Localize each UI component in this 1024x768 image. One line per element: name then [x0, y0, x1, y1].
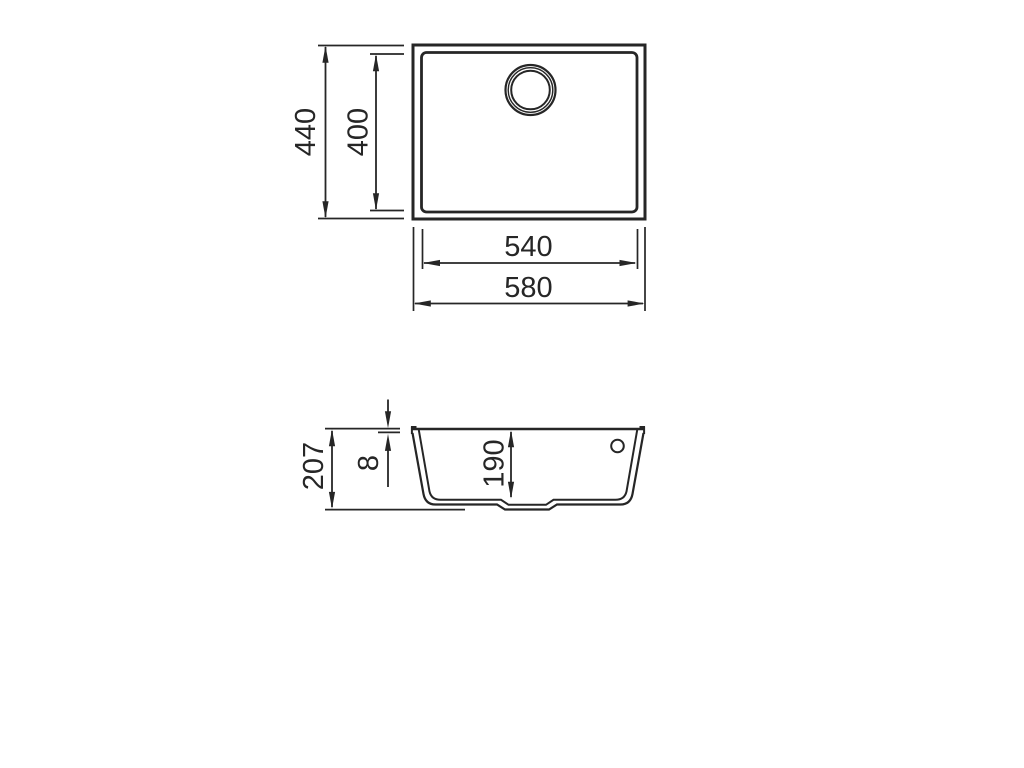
dimension-overall-width-580: 580	[414, 272, 645, 307]
dimension-bowl-depth-400: 400	[343, 54, 380, 210]
arrowhead-down	[373, 193, 379, 210]
dimension-overall-depth-440: 440	[290, 46, 329, 218]
dimension-bowl-inner-depth-190: 190	[479, 430, 515, 498]
dim-label-overall-width: 580	[504, 272, 552, 304]
section-view: 207 8 190	[298, 400, 645, 510]
dimension-rim-thickness-8: 8	[353, 400, 391, 488]
arrowhead-down	[329, 492, 335, 509]
top-view-dimensions: 440 400 540 580	[290, 46, 645, 312]
top-view-outline	[413, 45, 645, 219]
arrowhead-down	[322, 201, 328, 218]
dimension-overall-height-207: 207	[298, 429, 335, 509]
arrowhead-down	[385, 411, 391, 428]
dim-label-overall-depth: 440	[290, 108, 322, 156]
dimension-bowl-width-540: 540	[423, 231, 637, 266]
technical-drawing-page: 440 400 540 580	[0, 0, 1024, 768]
dim-label-bowl-depth: 400	[343, 108, 375, 156]
arrowhead-right	[628, 300, 645, 306]
sink-technical-drawing: 440 400 540 580	[0, 0, 1024, 768]
dim-label-bowl-inner-depth: 190	[479, 439, 511, 487]
drain-ring-middle	[508, 68, 553, 113]
arrowhead-up	[373, 54, 379, 71]
drain-ring-outer	[506, 65, 556, 115]
top-view: 440 400 540 580	[290, 45, 645, 311]
section-outline	[411, 427, 645, 510]
arrowhead-right	[620, 260, 637, 266]
dim-label-bowl-width: 540	[504, 231, 552, 263]
arrowhead-left	[423, 260, 440, 266]
bowl-outer-wall	[413, 433, 644, 510]
dim-label-overall-height: 207	[298, 442, 330, 490]
arrowhead-up	[322, 46, 328, 63]
arrowhead-left	[414, 300, 431, 306]
arrowhead-up	[385, 434, 391, 451]
dim-label-rim-thickness: 8	[353, 455, 385, 471]
bowl-inner-edge	[422, 53, 638, 213]
drain-ring-inner	[511, 71, 550, 110]
section-dimensions: 207 8 190	[298, 400, 514, 510]
overflow-hole	[611, 440, 624, 453]
bowl-inner-wall	[419, 430, 637, 505]
